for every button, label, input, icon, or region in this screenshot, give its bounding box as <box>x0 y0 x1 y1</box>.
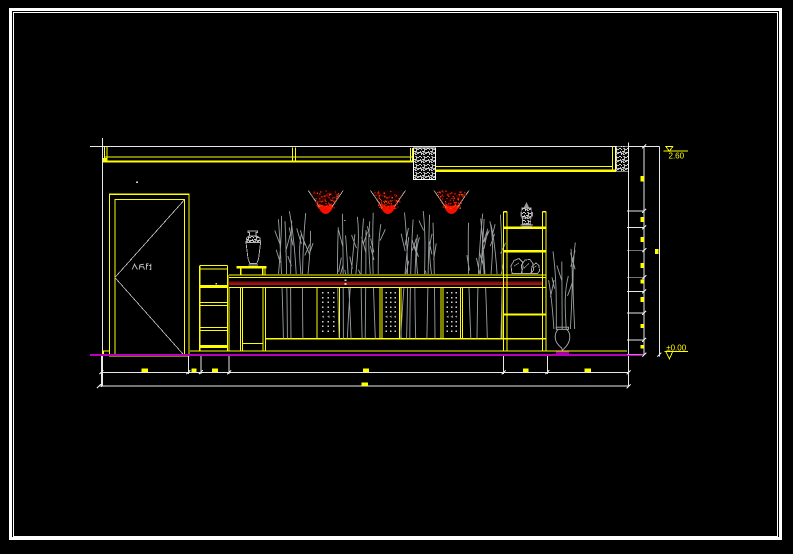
svg-text:2.60: 2.60 <box>669 151 685 160</box>
svg-text:±0.00: ±0.00 <box>666 343 687 352</box>
